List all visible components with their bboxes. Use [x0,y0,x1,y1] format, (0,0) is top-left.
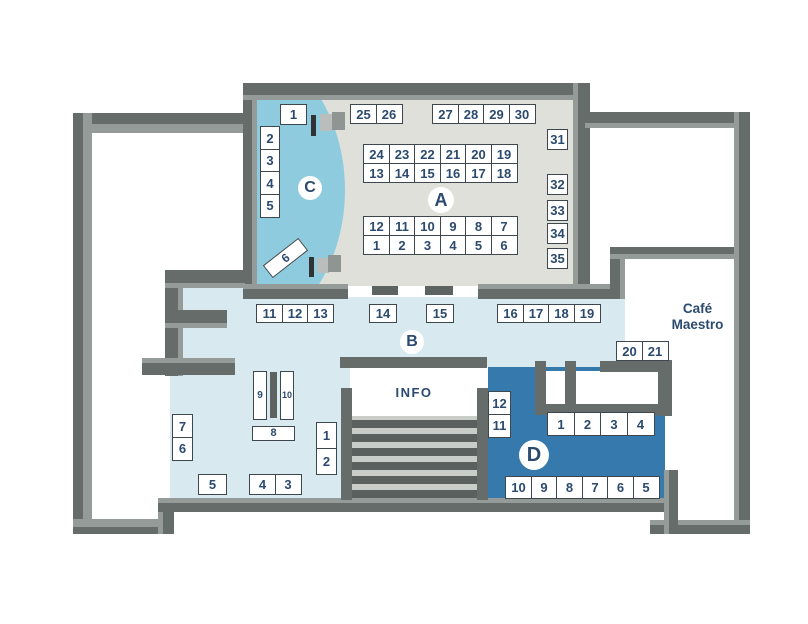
booth-b-16: 16 [497,304,524,323]
booth-a-27: 27 [432,104,459,124]
booth-group-a-35: 35 [547,248,568,269]
booth-a-15: 15 [414,163,441,183]
booth-group-d-12-11: 1211 [488,391,511,438]
booth-a-28: 28 [458,104,485,124]
booth-a-29: 29 [483,104,510,124]
booth-d-7: 7 [582,476,609,499]
booth-d-12: 12 [488,391,511,415]
booth-group-a-1-2-3-4-5-6: 123456 [363,235,518,255]
booth-a-11: 11 [389,216,416,236]
booth-a-14: 14 [389,163,416,183]
booth-a-19: 19 [491,144,518,164]
booth-group-b-7-6: 76 [172,414,193,461]
door-marker-grey-top-1 [320,114,332,131]
booth-b-10: 10 [280,371,294,420]
wall-a-door-stub-2 [425,286,453,295]
booth-b-19: 19 [574,304,601,323]
booth-group-a-25-26: 2526 [350,104,403,124]
booth-a-10: 10 [414,216,441,236]
booth-a-32: 32 [547,174,568,195]
booth-a-24: 24 [363,144,390,164]
booth-group-a-24-23-22-21-20-19: 242322212019 [363,144,518,164]
booth-b-8: 8 [252,426,295,441]
info-area: INFO [350,368,478,416]
cafe-maestro-label: Café Maestro [640,301,755,333]
wall-stair-right [477,388,488,500]
booth-a-26: 26 [376,104,403,124]
booth-group-b-10: 10 [280,371,294,420]
booth-b-20: 20 [616,341,643,361]
wall-hall-a-bottom-west [243,284,348,299]
booth-group-a-27-28-29-30: 27282930 [432,104,536,124]
booth-c-2: 2 [260,126,280,150]
booth-c-4: 4 [260,171,280,195]
booth-b-7: 7 [172,414,193,438]
booth-a-30: 30 [509,104,536,124]
wall-hall-a-left [243,83,257,298]
booth-group-a-33: 33 [547,200,568,221]
zone-label-a: A [428,187,454,213]
booth-b-17: 17 [523,304,550,323]
wall-annex-left [73,113,92,534]
floor-plan: INFO Café Maestro ABCD252627282930242322… [0,0,808,624]
booth-a-2: 2 [389,235,416,255]
booth-b-12: 12 [282,304,309,323]
booth-a-13: 13 [363,163,390,183]
booth-a-22: 22 [414,144,441,164]
wall-d-right [664,470,678,534]
booth-a-7: 7 [491,216,518,236]
booth-group-b-15: 15 [426,304,454,323]
booth-d-10: 10 [505,476,532,499]
booth-a-25: 25 [350,104,377,124]
booth-group-b-1-2: 12 [316,422,337,475]
wall-stair-left [341,388,352,500]
wall-d-stub-1 [535,361,546,415]
booth-a-5: 5 [465,235,492,255]
stair-step [352,490,477,498]
booth-d-3: 3 [600,412,628,436]
booth-a-4: 4 [440,235,467,255]
wall-outer-bottom [158,498,674,512]
booth-b-5: 5 [198,474,227,495]
door-marker-grey-top-2 [332,112,345,130]
staircase [352,415,477,500]
wall-northeast-top [585,112,750,128]
wall-annex-top [73,113,245,133]
booth-a-18: 18 [491,163,518,183]
booth-group-a-34: 34 [547,223,568,244]
booth-c-1: 1 [280,104,307,125]
info-label: INFO [395,385,432,400]
partition-between-9-10 [270,372,277,418]
booth-a-3: 3 [414,235,441,255]
booth-a-17: 17 [465,163,492,183]
cafe-label-line1: Café [640,301,755,317]
stair-step [352,434,477,442]
zone-label-c: C [298,176,322,200]
booth-group-b-20-21: 2021 [616,341,669,361]
booth-d-2: 2 [574,412,602,436]
booth-b-13: 13 [307,304,334,323]
booth-group-a-31: 31 [547,129,568,150]
booth-a-9: 9 [440,216,467,236]
booth-b-9: 9 [253,371,267,420]
booth-d-4: 4 [627,412,655,436]
wall-info-top [340,357,487,368]
booth-group-d-1-2-3-4: 1234 [547,412,655,436]
booth-group-b-11-12-13: 111213 [256,304,334,323]
booth-d-6: 6 [607,476,634,499]
booth-group-b-8: 8 [252,426,295,441]
booth-b-1: 1 [316,422,337,449]
zone-label-d: D [519,440,549,470]
booth-group-b-16-17-18-19: 16171819 [497,304,601,323]
booth-group-b-9: 9 [253,371,267,420]
booth-a-16: 16 [440,163,467,183]
wall-d-stub-2 [565,361,576,405]
wall-entry-arm-middle [165,310,227,328]
booth-c-3: 3 [260,149,280,173]
wall-cafe-top [610,247,736,259]
booth-group-a-13-14-15-16-17-18: 131415161718 [363,163,518,183]
booth-group-d-10-9-8-7-6-5: 1098765 [505,476,660,499]
door-marker-grey-bottom-2 [328,255,341,272]
booth-a-35: 35 [547,248,568,269]
booth-a-34: 34 [547,223,568,244]
booth-c-5: 5 [260,194,280,218]
booth-group-a-32: 32 [547,174,568,195]
booth-group-c-1: 1 [280,104,307,125]
booth-group-b-4-3: 43 [249,474,302,495]
booth-group-c-2-3-4-5: 2345 [260,126,280,218]
booth-group-a-12-11-10-9-8-7: 121110987 [363,216,518,236]
booth-a-23: 23 [389,144,416,164]
booth-b-14: 14 [369,304,397,323]
booth-d-1: 1 [547,412,575,436]
booth-d-11: 11 [488,414,511,438]
wall-entry-arm-bottom [142,358,235,375]
stair-step [352,420,477,428]
booth-b-18: 18 [548,304,575,323]
booth-a-8: 8 [465,216,492,236]
zone-label-b: B [400,330,424,354]
booth-d-8: 8 [556,476,583,499]
booth-a-33: 33 [547,200,568,221]
wall-hall-a-top [243,83,589,100]
booth-a-6: 6 [491,235,518,255]
booth-group-b-5: 5 [198,474,227,495]
booth-b-21: 21 [642,341,669,361]
wall-a-door-stub-1 [372,286,398,295]
d-corridor-floor [546,371,658,404]
stair-step [352,462,477,470]
booth-a-12: 12 [363,216,390,236]
stair-step [352,448,477,456]
door-marker-dark-top [311,115,316,136]
booth-b-4: 4 [249,474,276,495]
booth-b-15: 15 [426,304,454,323]
wall-hall-a-bottom-east [478,284,625,299]
booth-b-11: 11 [256,304,283,323]
cafe-label-line2: Maestro [640,317,755,333]
booth-b-6: 6 [172,437,193,461]
stair-step [352,476,477,484]
wall-entry-arm-top [165,270,245,288]
booth-a-31: 31 [547,129,568,150]
booth-d-9: 9 [531,476,558,499]
booth-a-21: 21 [440,144,467,164]
booth-group-b-14: 14 [369,304,397,323]
booth-a-1: 1 [363,235,390,255]
booth-a-20: 20 [465,144,492,164]
booth-b-2: 2 [316,448,337,475]
wall-d-corridor-top [600,361,672,372]
door-marker-dark-bottom [309,257,314,277]
booth-d-5: 5 [633,476,660,499]
booth-b-3: 3 [275,474,302,495]
